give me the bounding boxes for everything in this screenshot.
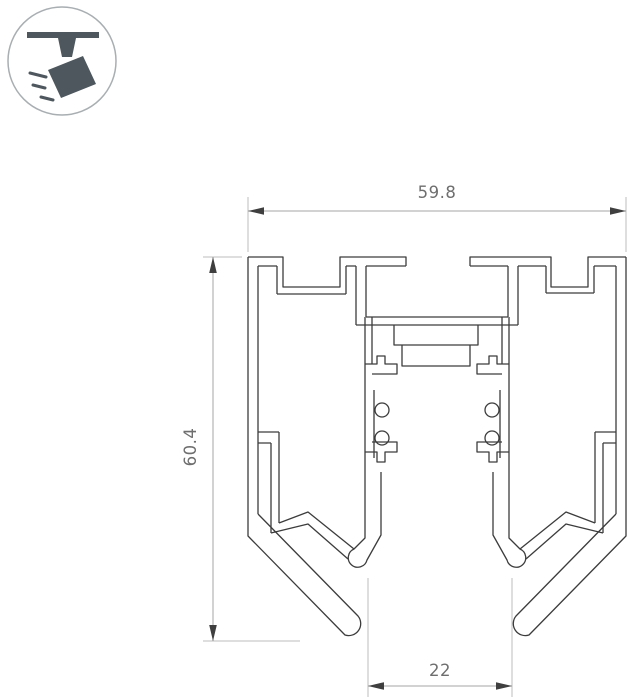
conductor-contact <box>485 403 499 417</box>
dimension-label-bottom: 22 <box>429 661 451 680</box>
profile-chamber-wall-right <box>508 266 518 325</box>
icon-light-rays <box>30 73 53 100</box>
profile-conductor-rail-right <box>477 317 509 462</box>
track-spotlight-icon <box>27 32 99 100</box>
conductor-contact <box>485 431 499 445</box>
conductor-contact <box>375 431 389 445</box>
dimension-label-top: 59.8 <box>418 183 457 202</box>
arrowhead-left <box>368 682 384 690</box>
icon-mount-stem <box>58 38 76 57</box>
profile-chamber-floor <box>356 317 518 325</box>
profile-reflector-right <box>520 512 603 559</box>
profile-reflector-left <box>271 512 354 559</box>
profile-hanging-wall-right <box>595 432 603 533</box>
profile-web-right <box>595 432 616 443</box>
conductor-contact <box>375 403 389 417</box>
dimension-left-height: 60.4 <box>181 257 300 641</box>
profile-web-left <box>258 432 279 443</box>
arrowhead-top <box>209 257 217 273</box>
profile-groove-box-right <box>546 266 594 293</box>
track-light-badge <box>8 7 116 115</box>
icon-ceiling-rail <box>27 32 99 38</box>
icon-lamp-body <box>48 56 96 98</box>
profile-hanging-wall-left <box>271 432 279 533</box>
arrowhead-right <box>610 207 626 215</box>
arrowhead-bottom <box>209 625 217 641</box>
badge-ring <box>8 7 116 115</box>
profile-top-contour-left <box>248 257 406 287</box>
profile-groove-box-left <box>277 266 346 294</box>
profile-top-contour-right <box>470 257 626 287</box>
arrowhead-right <box>496 682 512 690</box>
profile-wing-left <box>248 514 361 636</box>
profile-conductor-rail-left <box>365 317 397 462</box>
profile-cross-section <box>248 257 626 636</box>
profile-chamber-wall-left <box>356 266 366 325</box>
arrowhead-left <box>248 207 264 215</box>
profile-drawing-svg: 59.8 60.4 22 <box>0 0 630 700</box>
technical-drawing-page: 59.8 60.4 22 <box>0 0 630 700</box>
dimension-top-width: 59.8 <box>248 183 626 252</box>
profile-wing-right <box>513 514 626 636</box>
profile-slot-roof <box>394 325 478 366</box>
dimension-label-left: 60.4 <box>181 428 200 467</box>
dimension-bottom-width: 22 <box>368 578 512 697</box>
